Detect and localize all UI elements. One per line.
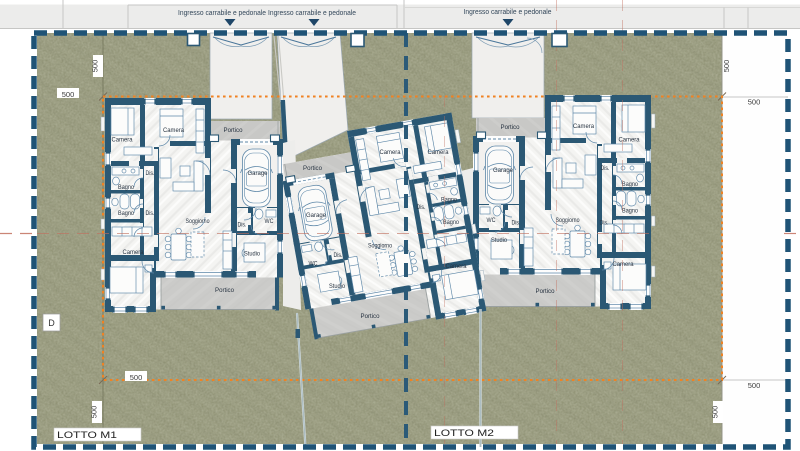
svg-text:LOTTO M1: LOTTO M1 (57, 430, 117, 441)
svg-text:Dis.: Dis. (238, 222, 247, 229)
svg-text:Studio: Studio (491, 237, 507, 244)
svg-text:Garage: Garage (306, 212, 326, 219)
svg-text:D: D (48, 318, 55, 328)
svg-text:Studio: Studio (329, 283, 345, 290)
svg-text:Portico: Portico (501, 124, 520, 131)
svg-text:Camera: Camera (380, 149, 401, 156)
svg-text:Camera: Camera (163, 127, 184, 134)
svg-text:500: 500 (748, 381, 761, 390)
svg-text:500: 500 (62, 90, 75, 99)
svg-text:500: 500 (722, 60, 731, 73)
svg-text:500: 500 (130, 373, 143, 382)
svg-text:Dis.: Dis. (417, 204, 426, 211)
svg-text:Soggiorno: Soggiorno (186, 218, 210, 225)
svg-text:Bagno: Bagno (118, 210, 134, 217)
svg-text:Camera: Camera (573, 123, 594, 130)
svg-text:Dis.: Dis. (601, 165, 610, 172)
svg-text:Dis.: Dis. (334, 252, 343, 259)
svg-text:Soggiorno: Soggiorno (556, 217, 580, 224)
svg-text:Camera: Camera (123, 249, 144, 256)
svg-text:Portico: Portico (303, 165, 322, 172)
svg-text:Camera: Camera (428, 149, 449, 156)
svg-text:Camera: Camera (112, 137, 133, 144)
svg-text:Ingresso carrabile e pedonale: Ingresso carrabile e pedonale (178, 10, 266, 17)
svg-text:WC: WC (309, 261, 318, 268)
svg-text:Dis.: Dis. (600, 220, 609, 227)
svg-text:Dis.: Dis. (146, 210, 155, 217)
svg-text:Bagno: Bagno (443, 219, 459, 226)
svg-text:Bagno: Bagno (118, 184, 134, 191)
svg-text:500: 500 (90, 406, 99, 419)
svg-text:Ingresso carrabile e pedonale: Ingresso carrabile e pedonale (268, 10, 356, 17)
svg-text:500: 500 (748, 98, 761, 107)
svg-text:Garage: Garage (248, 170, 268, 177)
svg-text:Camera: Camera (619, 137, 640, 144)
svg-text:500: 500 (711, 406, 720, 419)
svg-text:Bagno: Bagno (622, 208, 638, 215)
svg-text:Portico: Portico (536, 288, 555, 295)
svg-text:Studio: Studio (244, 251, 260, 258)
svg-text:Dis.: Dis. (512, 220, 521, 227)
svg-text:Bagno: Bagno (622, 181, 638, 188)
svg-text:Portico: Portico (224, 127, 243, 134)
svg-text:Ingresso carrabile e pedonale: Ingresso carrabile e pedonale (464, 9, 552, 16)
svg-text:500: 500 (91, 60, 100, 73)
svg-text:Garage: Garage (493, 167, 513, 174)
svg-text:Bagno: Bagno (441, 197, 457, 204)
svg-text:WC: WC (265, 218, 274, 225)
svg-text:Camera: Camera (446, 263, 467, 270)
svg-text:WC: WC (487, 217, 496, 224)
svg-text:Soggiorno: Soggiorno (368, 243, 392, 250)
svg-text:Camera: Camera (613, 261, 634, 268)
svg-text:LOTTO M2: LOTTO M2 (434, 428, 494, 439)
svg-text:Portico: Portico (215, 287, 234, 294)
svg-text:Portico: Portico (361, 313, 380, 320)
svg-text:Dis.: Dis. (146, 170, 155, 177)
